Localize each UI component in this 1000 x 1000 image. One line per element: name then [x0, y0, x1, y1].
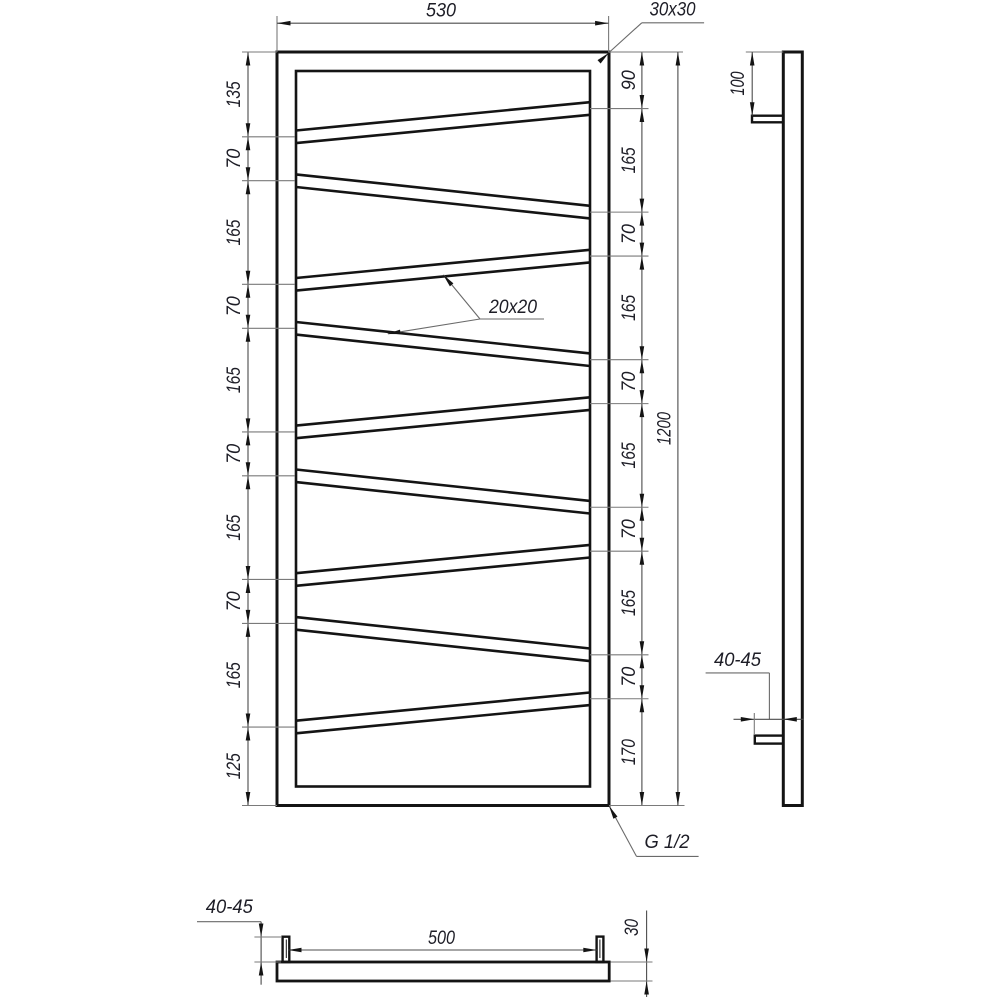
svg-text:30x30: 30x30 [650, 0, 696, 21]
svg-text:165: 165 [224, 219, 245, 245]
svg-text:530: 530 [426, 0, 456, 21]
svg-text:40-45: 40-45 [206, 897, 253, 918]
svg-text:170: 170 [619, 739, 640, 765]
svg-text:165: 165 [619, 590, 640, 616]
svg-text:70: 70 [224, 591, 245, 611]
svg-text:165: 165 [224, 514, 245, 540]
svg-text:135: 135 [224, 81, 245, 107]
svg-text:70: 70 [224, 148, 245, 168]
svg-text:40-45: 40-45 [714, 650, 761, 671]
svg-text:125: 125 [224, 753, 245, 779]
svg-text:G 1/2: G 1/2 [645, 832, 690, 853]
svg-text:70: 70 [224, 443, 245, 463]
svg-text:30: 30 [622, 919, 643, 936]
svg-text:165: 165 [224, 367, 245, 393]
svg-text:70: 70 [619, 666, 640, 686]
svg-text:165: 165 [619, 295, 640, 321]
svg-text:165: 165 [619, 147, 640, 173]
svg-text:70: 70 [224, 296, 245, 316]
svg-text:70: 70 [619, 519, 640, 539]
svg-text:165: 165 [224, 662, 245, 688]
svg-text:500: 500 [428, 928, 455, 949]
svg-text:165: 165 [619, 442, 640, 468]
svg-text:70: 70 [619, 371, 640, 391]
svg-text:1200: 1200 [654, 412, 675, 445]
svg-text:100: 100 [728, 71, 749, 95]
svg-text:20x20: 20x20 [488, 297, 537, 318]
svg-text:90: 90 [619, 70, 640, 90]
svg-text:70: 70 [619, 224, 640, 244]
